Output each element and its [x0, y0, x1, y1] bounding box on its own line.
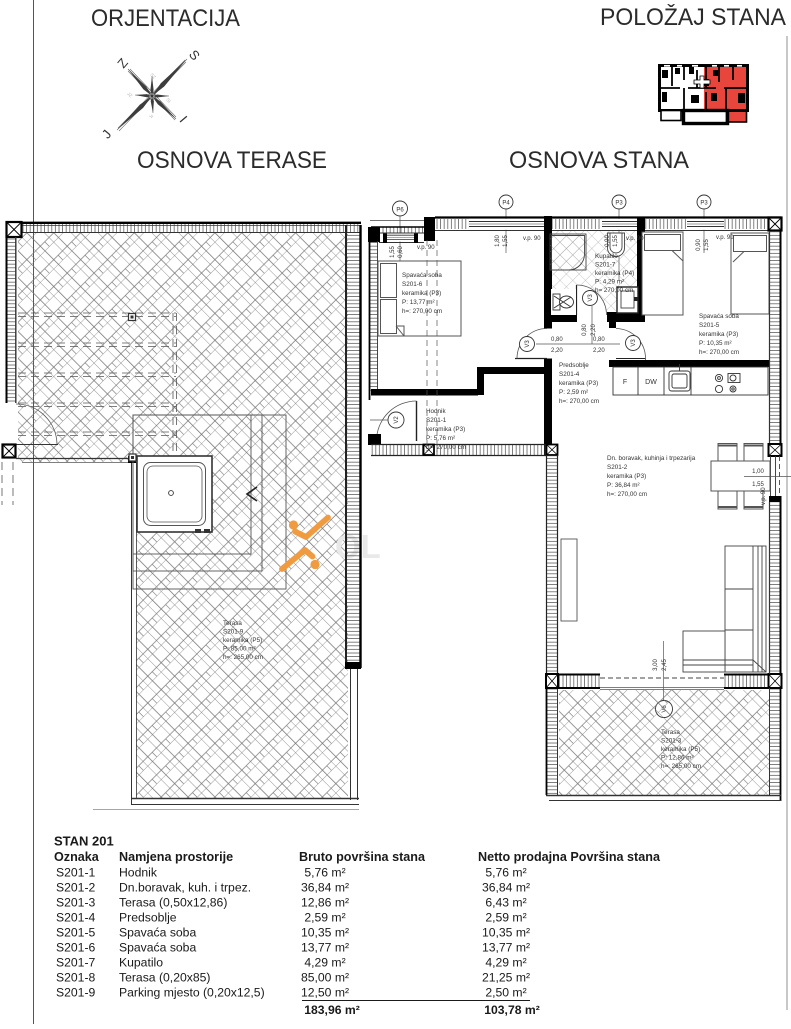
- svg-text:P: 12,86 m²: P: 12,86 m²: [661, 755, 694, 762]
- svg-text:Terasa: Terasa: [661, 729, 680, 736]
- svg-text:keramika (P3): keramika (P3): [607, 473, 646, 480]
- svg-text:1,55: 1,55: [752, 482, 764, 488]
- svg-text:S201-7: S201-7: [56, 956, 96, 970]
- svg-text:2,50 m²: 2,50 m²: [485, 986, 526, 1000]
- svg-text:1,00: 1,00: [752, 469, 764, 475]
- svg-text:OSNOVA STANA: OSNOVA STANA: [509, 147, 689, 174]
- svg-text:12,86 m²: 12,86 m²: [301, 896, 349, 910]
- svg-text:S201-3: S201-3: [661, 738, 682, 745]
- svg-text:103,78 m²: 103,78 m²: [484, 1003, 540, 1017]
- svg-text:Spavaća soba: Spavaća soba: [119, 926, 196, 940]
- svg-text:F: F: [623, 379, 627, 386]
- svg-text:0,90: 0,90: [696, 239, 702, 251]
- svg-text:v.p. 90: v.p. 90: [417, 245, 435, 251]
- svg-text:S201-1: S201-1: [56, 866, 96, 880]
- svg-text:4,29 m²: 4,29 m²: [304, 956, 345, 970]
- svg-text:DW: DW: [645, 379, 657, 386]
- svg-text:Bruto površina stana: Bruto površina stana: [299, 850, 426, 864]
- svg-text:P4: P4: [502, 201, 510, 207]
- svg-text:0,80: 0,80: [582, 324, 588, 336]
- svg-text:1,55: 1,55: [390, 246, 396, 258]
- svg-text:h=: 265,00 cm: h=: 265,00 cm: [223, 654, 263, 661]
- svg-text:v.p. 90: v.p. 90: [761, 487, 767, 505]
- svg-text:P: 4,29 m²: P: 4,29 m²: [595, 279, 624, 286]
- svg-text:S201-2: S201-2: [607, 464, 628, 471]
- svg-text:h=: 270,00 cm: h=: 270,00 cm: [402, 308, 442, 315]
- svg-text:V3: V3: [631, 339, 637, 347]
- svg-text:85,00 m²: 85,00 m²: [301, 971, 349, 985]
- svg-text:10,35 m²: 10,35 m²: [482, 926, 530, 940]
- svg-text:3,00: 3,00: [653, 659, 659, 671]
- svg-text:Netto prodajna Površina stana: Netto prodajna Površina stana: [478, 850, 661, 864]
- svg-text:183,96 m²: 183,96 m²: [304, 1003, 360, 1017]
- svg-text:S201-9: S201-9: [223, 629, 244, 636]
- svg-text:0,80: 0,80: [551, 337, 563, 343]
- svg-text:36,84 m²: 36,84 m²: [482, 881, 530, 895]
- svg-text:Spavaća soba: Spavaća soba: [402, 272, 442, 279]
- svg-text:h= 270,00 cm: h= 270,00 cm: [595, 287, 633, 294]
- svg-text:keramika (P3): keramika (P3): [402, 290, 441, 297]
- svg-text:keramika (P5): keramika (P5): [223, 637, 262, 644]
- svg-text:Terasa (0,20x85): Terasa (0,20x85): [119, 971, 210, 985]
- svg-text:keramika (P3): keramika (P3): [426, 426, 465, 433]
- svg-text:Spavaća soba: Spavaća soba: [699, 313, 739, 320]
- svg-text:Parking mjesto (0,20x12,5): Parking mjesto (0,20x12,5): [119, 986, 265, 1000]
- svg-text:OSNOVA TERASE: OSNOVA TERASE: [137, 147, 327, 174]
- svg-text:1,55: 1,55: [613, 235, 619, 247]
- svg-text:0,80: 0,80: [593, 337, 605, 343]
- svg-text:Spavaća soba: Spavaća soba: [119, 941, 196, 955]
- svg-text:5,76 m²: 5,76 m²: [304, 866, 345, 880]
- svg-text:V2: V2: [394, 416, 400, 424]
- svg-text:S201-4: S201-4: [559, 371, 580, 378]
- svg-text:S201-3: S201-3: [56, 896, 96, 910]
- svg-text:P: 2,59 m²: P: 2,59 m²: [559, 389, 588, 396]
- svg-text:Terasa: Terasa: [223, 620, 242, 627]
- svg-text:Kupatilo: Kupatilo: [119, 956, 163, 970]
- svg-text:Hodnik: Hodnik: [426, 408, 446, 415]
- svg-text:Dn. boravak, kuhinja i trpezar: Dn. boravak, kuhinja i trpezarija: [607, 455, 696, 462]
- svg-text:S201-4: S201-4: [56, 911, 96, 925]
- svg-text:S201-6: S201-6: [402, 281, 423, 288]
- svg-text:6,43 m²: 6,43 m²: [485, 896, 526, 910]
- svg-text:keramika (P5): keramika (P5): [661, 746, 700, 753]
- svg-text:P3: P3: [615, 201, 623, 207]
- svg-text:2,45: 2,45: [662, 659, 668, 671]
- svg-text:STAN 201: STAN 201: [54, 834, 114, 849]
- svg-text:Namjena prostorije: Namjena prostorije: [119, 850, 233, 864]
- svg-text:v.p. 90: v.p. 90: [716, 235, 734, 241]
- svg-text:h=: 270,00 cm: h=: 270,00 cm: [559, 398, 599, 405]
- svg-text:1,55: 1,55: [704, 239, 710, 251]
- svg-text:Hodnik: Hodnik: [119, 866, 158, 880]
- svg-text:P: 13,77 m²: P: 13,77 m²: [402, 299, 435, 306]
- svg-text:h=: 270,00 cm: h=: 270,00 cm: [426, 444, 466, 451]
- svg-text:Predsoblje: Predsoblje: [559, 362, 589, 369]
- svg-text:keramika (P4): keramika (P4): [595, 270, 634, 277]
- svg-text:h=: 270,00 cm: h=: 270,00 cm: [699, 349, 739, 356]
- svg-text:Terasa (0,50x12,86): Terasa (0,50x12,86): [119, 896, 227, 910]
- svg-text:v.p. 90: v.p. 90: [626, 236, 644, 242]
- svg-text:21,25 m²: 21,25 m²: [482, 971, 530, 985]
- svg-text:4,29 m²: 4,29 m²: [485, 956, 526, 970]
- svg-text:S201-9: S201-9: [56, 986, 96, 1000]
- svg-text:13,77 m²: 13,77 m²: [301, 941, 349, 955]
- svg-text:S201-5: S201-5: [699, 322, 720, 329]
- svg-text:S201-7: S201-7: [595, 262, 616, 269]
- svg-text:POLOŽAJ STANA: POLOŽAJ STANA: [600, 4, 786, 31]
- svg-text:2,20: 2,20: [591, 324, 597, 336]
- svg-text:Kupatilo: Kupatilo: [595, 253, 618, 260]
- svg-text:12,50 m²: 12,50 m²: [301, 986, 349, 1000]
- svg-text:36,84 m²: 36,84 m²: [301, 881, 349, 895]
- svg-text:P: 5,76 m²: P: 5,76 m²: [426, 435, 455, 442]
- svg-text:P6: P6: [396, 208, 404, 214]
- svg-text:S201-2: S201-2: [56, 881, 96, 895]
- svg-text:1,55: 1,55: [503, 235, 509, 247]
- svg-text:P: 10,35 m²: P: 10,35 m²: [699, 340, 732, 347]
- svg-text:h=: 270,00 cm: h=: 270,00 cm: [607, 491, 647, 498]
- svg-text:S201-5: S201-5: [56, 926, 96, 940]
- svg-text:0,60: 0,60: [398, 246, 404, 258]
- svg-text:2,20: 2,20: [593, 348, 605, 354]
- svg-text:ORJENTACIJA: ORJENTACIJA: [91, 5, 240, 32]
- svg-text:2,59 m²: 2,59 m²: [304, 911, 345, 925]
- svg-text:0,90: 0,90: [605, 235, 611, 247]
- svg-text:P: 85,00 m²: P: 85,00 m²: [223, 646, 256, 653]
- svg-text:h=: 265,00 cm: h=: 265,00 cm: [661, 763, 701, 770]
- svg-text:5,76 m²: 5,76 m²: [485, 866, 526, 880]
- svg-text:2,59 m²: 2,59 m²: [485, 911, 526, 925]
- svg-text:P: 36,84 m²: P: 36,84 m²: [607, 482, 640, 489]
- svg-text:V3: V3: [525, 340, 531, 348]
- svg-text:Dn.boravak, kuh. i trpez.: Dn.boravak, kuh. i trpez.: [119, 881, 251, 895]
- svg-text:1,80: 1,80: [495, 235, 501, 247]
- svg-text:Predsoblje: Predsoblje: [119, 911, 177, 925]
- svg-text:S201-8: S201-8: [56, 971, 96, 985]
- svg-text:13,77 m²: 13,77 m²: [482, 941, 530, 955]
- svg-text:P3: P3: [700, 201, 708, 207]
- svg-text:V3: V3: [588, 294, 594, 302]
- svg-text:keramika (P3): keramika (P3): [699, 331, 738, 338]
- svg-text:keramika (P3): keramika (P3): [559, 380, 598, 387]
- svg-text:2,20: 2,20: [551, 348, 563, 354]
- svg-text:S201-6: S201-6: [56, 941, 96, 955]
- svg-text:Oznaka: Oznaka: [54, 850, 100, 864]
- svg-text:10,35 m²: 10,35 m²: [301, 926, 349, 940]
- svg-text:v.p. 90: v.p. 90: [523, 236, 541, 242]
- svg-text:S201-1: S201-1: [426, 417, 447, 424]
